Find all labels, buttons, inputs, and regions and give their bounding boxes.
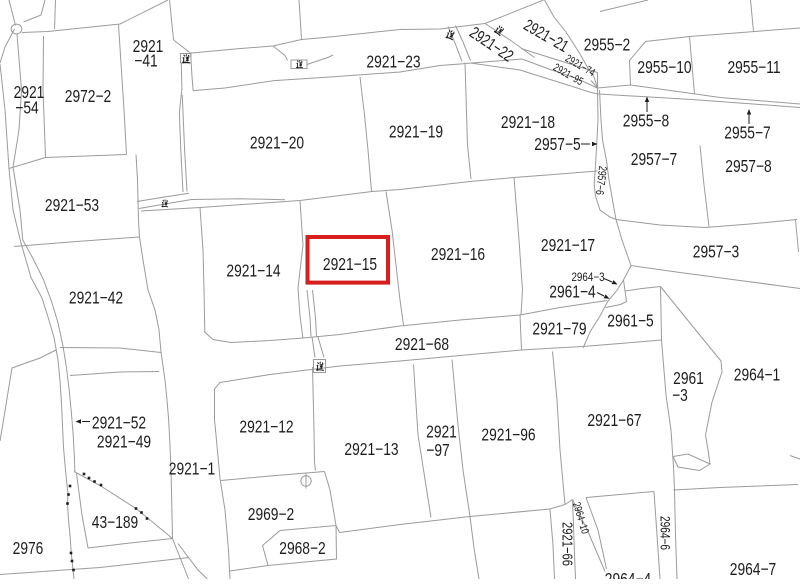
svg-text:2957−8: 2957−8 bbox=[725, 157, 772, 176]
svg-text:2961−4: 2961−4 bbox=[549, 283, 596, 302]
svg-text:2921−13: 2921−13 bbox=[344, 440, 398, 459]
svg-text:2964−7: 2964−7 bbox=[730, 560, 776, 579]
svg-text:2969−2: 2969−2 bbox=[248, 505, 294, 524]
svg-text:2921−19: 2921−19 bbox=[389, 123, 443, 142]
svg-text:2964−4: 2964−4 bbox=[605, 570, 652, 579]
svg-text:2921−14: 2921−14 bbox=[226, 262, 280, 281]
svg-text:2921−79: 2921−79 bbox=[532, 320, 586, 339]
svg-text:2921−67: 2921−67 bbox=[587, 411, 641, 430]
svg-text:−41: −41 bbox=[134, 52, 157, 71]
svg-text:43−189: 43−189 bbox=[92, 513, 139, 532]
svg-text:−97: −97 bbox=[426, 441, 449, 460]
svg-text:2921−52: 2921−52 bbox=[92, 414, 146, 433]
svg-text:2921−68: 2921−68 bbox=[395, 335, 449, 354]
svg-text:2964−1: 2964−1 bbox=[734, 366, 780, 385]
svg-text:2921−53: 2921−53 bbox=[45, 196, 99, 215]
svg-text:2921−66: 2921−66 bbox=[559, 522, 576, 566]
svg-text:2921−18: 2921−18 bbox=[501, 113, 555, 132]
svg-text:−54: −54 bbox=[15, 99, 39, 118]
svg-text:2964−6: 2964−6 bbox=[657, 516, 673, 550]
svg-text:2955−11: 2955−11 bbox=[727, 58, 780, 77]
svg-text:2921−1: 2921−1 bbox=[169, 460, 215, 479]
svg-text:2921−49: 2921−49 bbox=[97, 433, 151, 452]
svg-text:2955−7: 2955−7 bbox=[724, 124, 770, 143]
svg-text:2921−16: 2921−16 bbox=[431, 245, 485, 264]
svg-text:2957−5: 2957−5 bbox=[534, 135, 581, 154]
svg-text:2921−15: 2921−15 bbox=[323, 255, 377, 274]
svg-text:2921−23: 2921−23 bbox=[366, 53, 420, 72]
svg-text:2976: 2976 bbox=[13, 539, 44, 558]
svg-text:2921−96: 2921−96 bbox=[481, 426, 535, 445]
svg-text:2957−7: 2957−7 bbox=[631, 150, 677, 169]
svg-text:2955−10: 2955−10 bbox=[637, 58, 691, 77]
svg-text:2955−2: 2955−2 bbox=[584, 36, 630, 55]
svg-text:2961−5: 2961−5 bbox=[607, 312, 654, 331]
svg-text:2955−8: 2955−8 bbox=[623, 112, 670, 131]
svg-text:2957−3: 2957−3 bbox=[693, 243, 740, 262]
svg-text:2921−20: 2921−20 bbox=[250, 134, 304, 153]
svg-text:2921: 2921 bbox=[426, 423, 457, 442]
svg-text:2921−12: 2921−12 bbox=[239, 418, 293, 437]
svg-text:2921−17: 2921−17 bbox=[541, 236, 595, 255]
svg-text:2968−2: 2968−2 bbox=[279, 539, 325, 558]
svg-text:2972−2: 2972−2 bbox=[65, 87, 111, 106]
svg-text:−3: −3 bbox=[672, 386, 688, 405]
svg-text:2921−42: 2921−42 bbox=[69, 289, 123, 308]
